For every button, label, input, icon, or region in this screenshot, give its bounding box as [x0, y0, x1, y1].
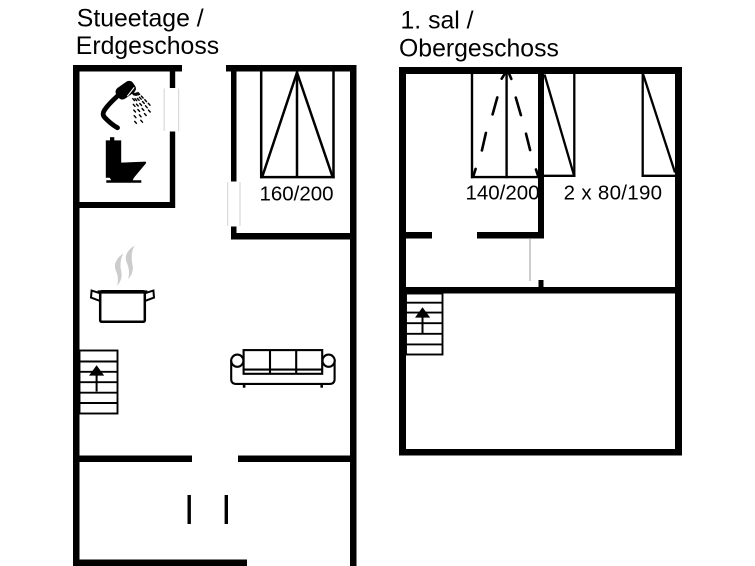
svg-text:2 x 80/190: 2 x 80/190 — [564, 181, 663, 204]
svg-text:Obergeschoss: Obergeschoss — [399, 36, 559, 63]
svg-text:Stueetage /: Stueetage / — [77, 6, 204, 33]
svg-text:1. sal /: 1. sal / — [401, 7, 474, 34]
svg-text:Erdgeschoss: Erdgeschoss — [76, 33, 219, 60]
svg-text:140/200: 140/200 — [465, 181, 539, 204]
svg-text:160/200: 160/200 — [259, 183, 333, 206]
